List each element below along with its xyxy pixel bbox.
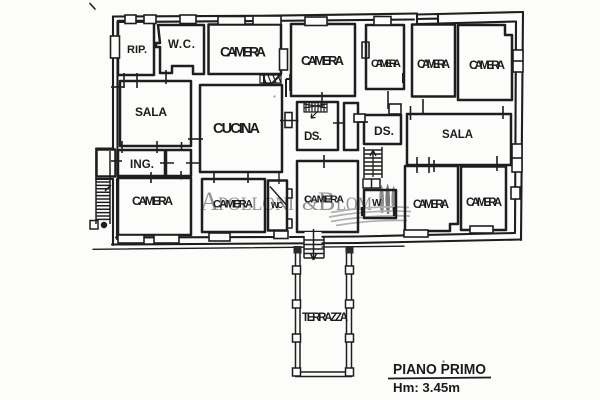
svg-text:SALA: SALA [135,105,167,119]
svg-text:TERRAZZA: TERRAZZA [302,312,348,324]
svg-text:CAMERA: CAMERA [213,199,253,211]
svg-text:DS.: DS. [374,124,394,138]
svg-text:CAMERA: CAMERA [466,197,502,209]
svg-text:CAMERA: CAMERA [301,53,345,68]
svg-text:CAMERA: CAMERA [132,194,173,208]
svg-text:W: W [372,198,382,209]
svg-text:W.C.: W.C. [168,39,195,51]
svg-text:ING.: ING. [130,159,154,171]
svg-text:SALA: SALA [442,129,473,141]
svg-text:Hm: 3.45m: Hm: 3.45m [393,381,460,395]
svg-text:CAMERA: CAMERA [304,194,344,206]
svg-text:CAMERA: CAMERA [413,199,449,211]
svg-text:CAMERA: CAMERA [371,58,401,70]
svg-text:RIP.: RIP. [127,44,147,56]
svg-text:CAMERA: CAMERA [469,58,505,72]
svg-text:PIANO PRIMO: PIANO PRIMO [393,361,486,378]
svg-text:CUCINA: CUCINA [213,121,261,137]
svg-text:DS.: DS. [304,131,322,143]
svg-text:CAMERA: CAMERA [417,59,450,71]
svg-text:CAMERA: CAMERA [220,44,266,60]
svg-text:W.C: W.C [271,201,283,210]
